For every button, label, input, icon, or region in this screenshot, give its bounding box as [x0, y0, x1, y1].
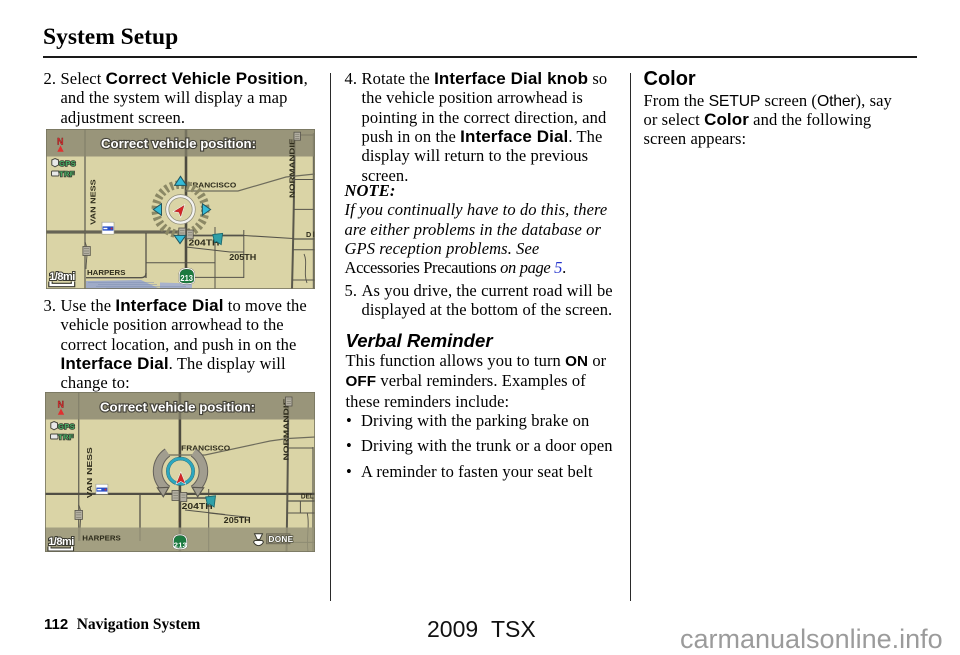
svg-text:HARPERS: HARPERS — [87, 268, 126, 277]
svg-text:1/8mi: 1/8mi — [49, 271, 75, 283]
svg-text:GPS: GPS — [59, 159, 76, 168]
svg-text:NORMANDIE: NORMANDIE — [282, 398, 291, 460]
svg-text:213: 213 — [180, 274, 193, 283]
svg-text:HARPERS: HARPERS — [82, 533, 121, 542]
svg-text:Correct vehicle position:: Correct vehicle position: — [100, 400, 255, 415]
svg-text:NORMANDIE: NORMANDIE — [288, 138, 297, 198]
svg-text:205TH: 205TH — [224, 516, 251, 525]
svg-text:VAN NESS: VAN NESS — [89, 179, 98, 224]
svg-text:TRF: TRF — [58, 433, 74, 442]
svg-text:GPS: GPS — [58, 422, 75, 431]
svg-text:DEL: DEL — [301, 491, 314, 500]
svg-text:N: N — [58, 400, 65, 410]
svg-text:205TH: 205TH — [229, 253, 256, 262]
svg-text:TRF: TRF — [59, 170, 75, 179]
svg-text:1/8mi: 1/8mi — [48, 536, 74, 548]
svg-text:D: D — [306, 230, 311, 239]
svg-text:DONE: DONE — [269, 535, 294, 544]
svg-text:VAN NESS: VAN NESS — [85, 447, 94, 498]
svg-text:213: 213 — [174, 540, 187, 549]
svg-text:Correct vehicle position:: Correct vehicle position: — [101, 136, 256, 151]
svg-text:N: N — [57, 137, 64, 147]
svg-text:FRANCISCO: FRANCISCO — [181, 444, 230, 453]
